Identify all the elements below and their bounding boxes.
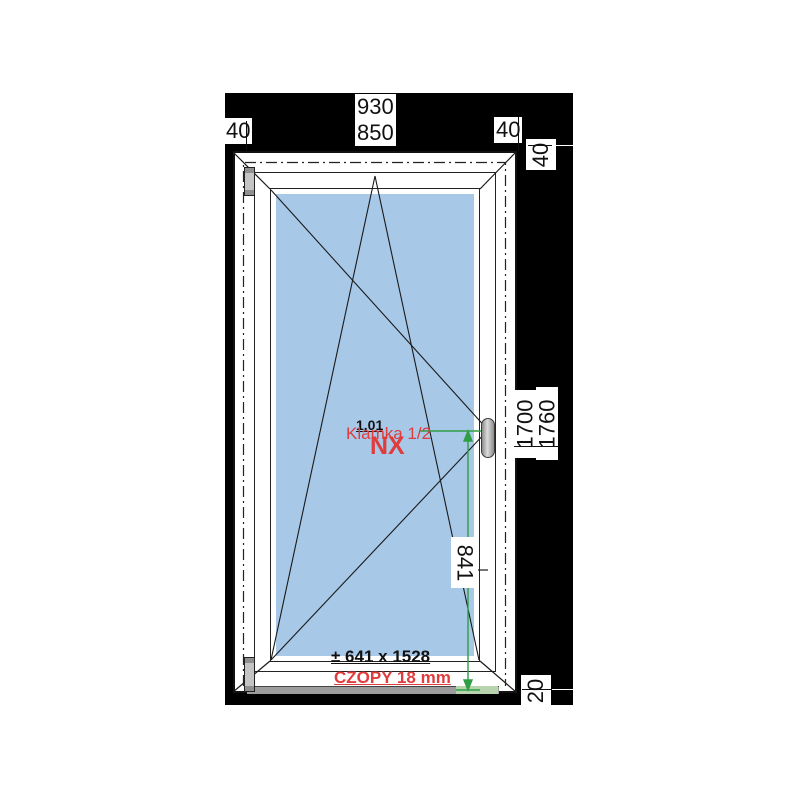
dim-width-inner: 850: [355, 120, 396, 146]
hinge-top-icon: [244, 167, 255, 196]
hinge-bottom-icon: [244, 657, 255, 692]
window-handle-icon: [481, 418, 495, 458]
system-code-label: NX: [370, 432, 405, 461]
dimension-tick: [552, 145, 573, 146]
dimension-tick: [528, 145, 552, 146]
glass-dimensions-label: ± 641 x 1528: [331, 647, 430, 667]
dim-width-total: 930: [355, 94, 396, 120]
tenons-note-label: CZOPY 18 mm: [334, 668, 451, 688]
dim-height-inner: 1700: [514, 390, 536, 458]
dim-offset-bottom: 20: [521, 675, 551, 706]
window-sill-marker: [456, 686, 498, 694]
dimension-tick: [246, 121, 247, 151]
dim-handle-height: 841: [451, 537, 478, 588]
dim-height-total: 1760: [536, 387, 558, 460]
dimension-tick: [518, 117, 519, 151]
dimension-tick: [522, 689, 552, 690]
window-drawing: 930 850 40 40 40 1700 1760 841 20 1.01 K…: [0, 0, 800, 800]
dim-offset-left: 40: [224, 118, 252, 144]
dim-offset-top: 40: [526, 139, 556, 170]
dimension-tick: [514, 446, 558, 447]
dimension-tick: [552, 689, 573, 690]
